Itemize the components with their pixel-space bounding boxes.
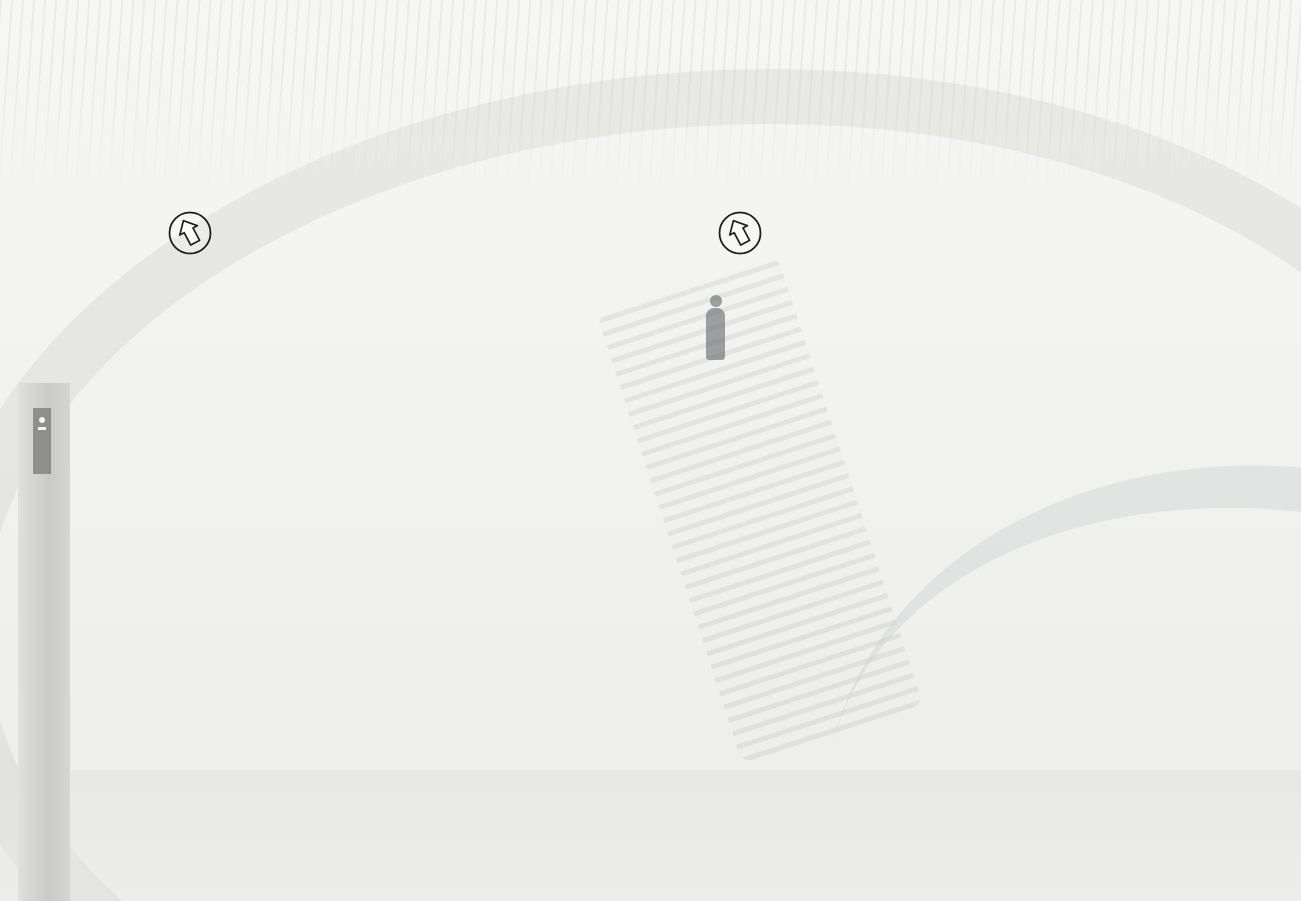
low-zone-caption	[299, 151, 619, 154]
stacking-plan	[55, 518, 305, 886]
pillar-sign	[33, 408, 51, 474]
pillar-sign-bar	[38, 427, 46, 430]
slide	[0, 0, 1301, 901]
mid-zone-floor-plan	[755, 215, 1285, 700]
pillar-sign-dot	[39, 417, 45, 423]
mid-zone-caption	[854, 151, 1174, 154]
